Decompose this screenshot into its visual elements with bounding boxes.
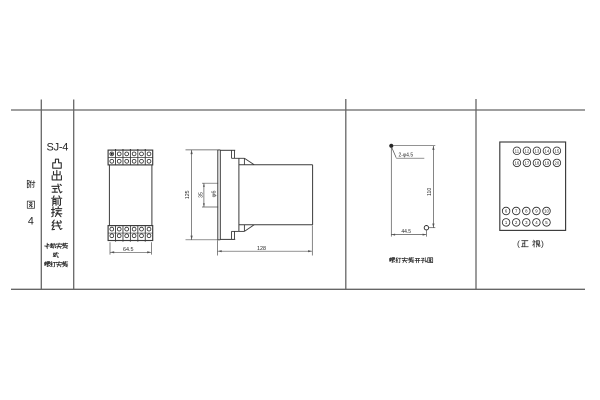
svg-text:): ) [541,239,544,249]
svg-text:(: ( [517,239,520,249]
svg-text:7: 7 [515,209,518,214]
svg-text:35: 35 [198,192,204,198]
svg-text:15: 15 [555,148,560,153]
svg-text:110: 110 [427,188,433,196]
svg-text:12: 12 [525,148,530,153]
svg-text:19: 19 [545,161,550,166]
svg-text:10: 10 [544,209,549,214]
svg-text:13: 13 [535,148,540,153]
svg-text:14: 14 [545,148,550,153]
svg-text:3: 3 [525,220,528,225]
svg-text:4: 4 [535,220,538,225]
svg-text:2-φ4.5: 2-φ4.5 [398,153,413,159]
svg-text:125: 125 [185,190,191,199]
svg-text:18: 18 [535,161,540,166]
svg-text:11: 11 [515,148,520,153]
svg-text:φ6: φ6 [212,190,218,197]
svg-text:6: 6 [505,209,508,214]
svg-text:16: 16 [515,161,520,166]
svg-text:44.5: 44.5 [401,229,411,235]
svg-text:9: 9 [535,209,538,214]
svg-text:4: 4 [28,215,34,227]
svg-text:128: 128 [257,246,266,252]
svg-text:20: 20 [555,161,560,166]
svg-text:8: 8 [525,209,528,214]
svg-text:17: 17 [525,161,530,166]
svg-text:1: 1 [505,220,508,225]
svg-text:64.5: 64.5 [123,247,134,253]
svg-text:5: 5 [545,220,548,225]
svg-text:2: 2 [515,220,518,225]
svg-text:SJ-4: SJ-4 [46,141,68,153]
